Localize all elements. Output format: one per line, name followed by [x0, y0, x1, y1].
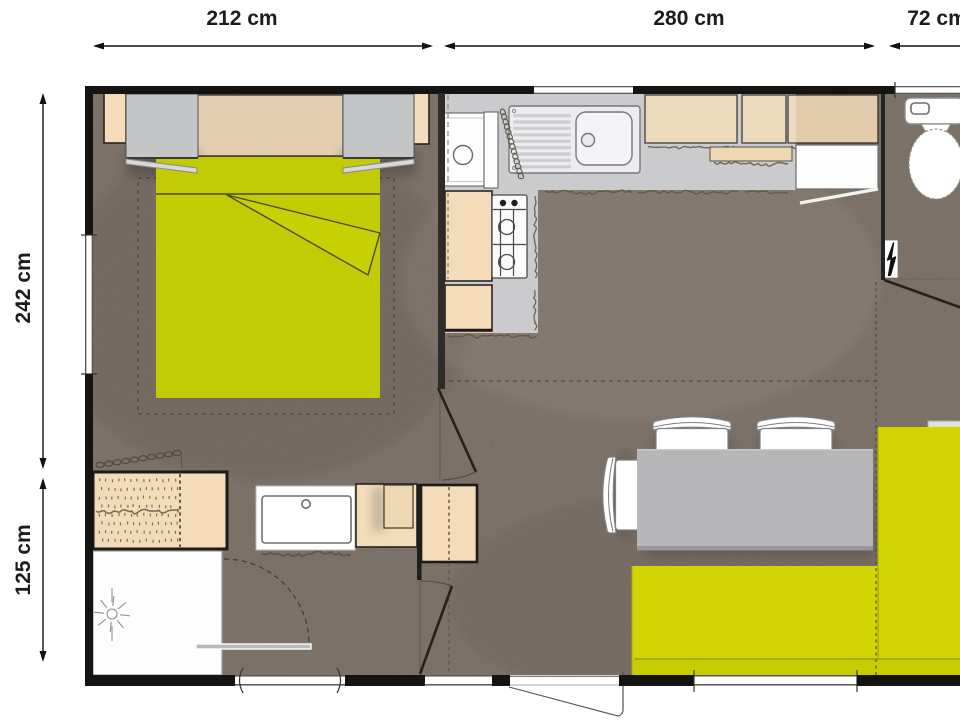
svg-text:125 cm: 125 cm [12, 524, 35, 595]
svg-text:242 cm: 242 cm [12, 252, 35, 323]
svg-text:280 cm: 280 cm [653, 7, 724, 30]
svg-text:72 cm: 72 cm [907, 7, 960, 30]
svg-text:212 cm: 212 cm [206, 7, 277, 30]
